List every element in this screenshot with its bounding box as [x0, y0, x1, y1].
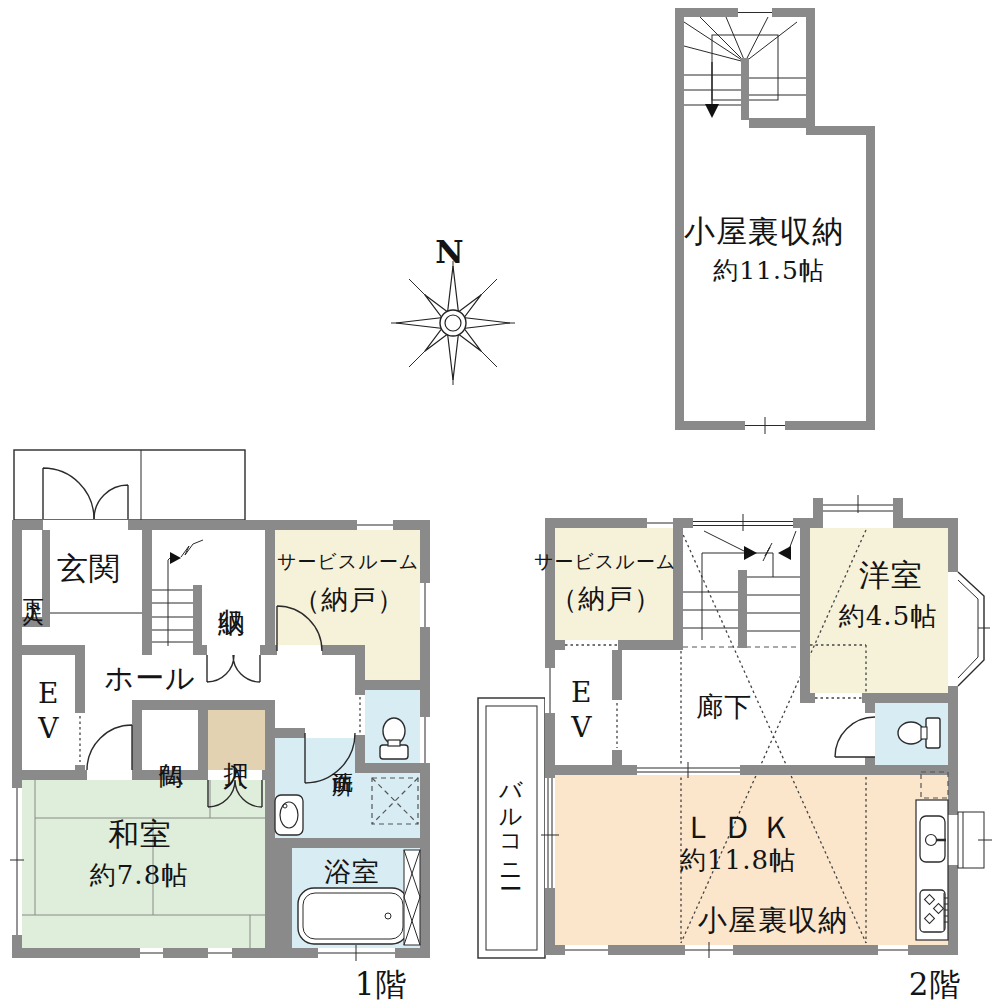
room-label-washitsu: 和室: [108, 818, 172, 851]
room-label-yoshitsu: 洋室: [859, 559, 923, 592]
sink-icon-1f: [275, 795, 303, 835]
room-label-shuno: 収納: [217, 587, 246, 591]
room-label-balcony: バルコニー: [499, 765, 523, 880]
stove-icon: [920, 890, 948, 932]
room-label-service2f-line2: （納戸）: [550, 585, 662, 614]
room-label-butsuma: 仏間: [157, 745, 182, 749]
room-size-washitsu: 約7.8帖: [90, 862, 188, 890]
room-label-ev2: EV: [566, 676, 596, 746]
room-size-yoshitsu: 約4.5帖: [839, 603, 937, 631]
bath-window-louver: [404, 850, 420, 945]
compass-icon: [391, 261, 515, 385]
attic-room-label: 小屋裏収納: [684, 215, 844, 248]
room-label-service1f-line2: （納戸）: [293, 586, 405, 615]
bay-window: [948, 572, 990, 686]
floor1-label: 1階: [355, 968, 408, 1000]
compass-north-label: N: [435, 236, 464, 269]
entrance-porch: [14, 450, 245, 520]
room-label-getabako: 下足入: [22, 583, 44, 589]
floor-plan-page: 小屋裏収納 約11.5帖 N 下足入 玄関 収納 サービスルーム （納戸） EV…: [0, 0, 1000, 1000]
room-label-yokushitsu: 浴室: [324, 858, 380, 887]
room-size-ldk: 約11.8帖: [680, 847, 796, 875]
floor2-label: 2階: [909, 968, 962, 1000]
room-label-ev1: EV: [33, 677, 63, 747]
room-label-hall: ホール: [104, 663, 195, 694]
toilet-icon-1f: [380, 718, 408, 759]
room-label-senmenjo: 洗面所: [331, 755, 353, 761]
kitchen-window-bump: [948, 812, 992, 868]
room-label-service2f-line1: サービスルーム: [534, 551, 676, 571]
room-label-service1f-line1: サービスルーム: [277, 551, 419, 571]
room-label-rouka: 廊下: [696, 693, 752, 722]
room-label-genkan: 玄関: [57, 552, 121, 585]
attic-size-label: 約11.5帖: [713, 258, 825, 285]
room-label-ldk: ＬＤＫ: [684, 811, 801, 844]
room-label-attic-over-ldk: 小屋裏収納: [698, 905, 848, 936]
bathtub-icon: [298, 888, 408, 944]
room-label-oshiire: 押入: [222, 742, 249, 746]
kitchen-sink-icon: [920, 816, 946, 862]
attic-window-top: [738, 8, 772, 17]
